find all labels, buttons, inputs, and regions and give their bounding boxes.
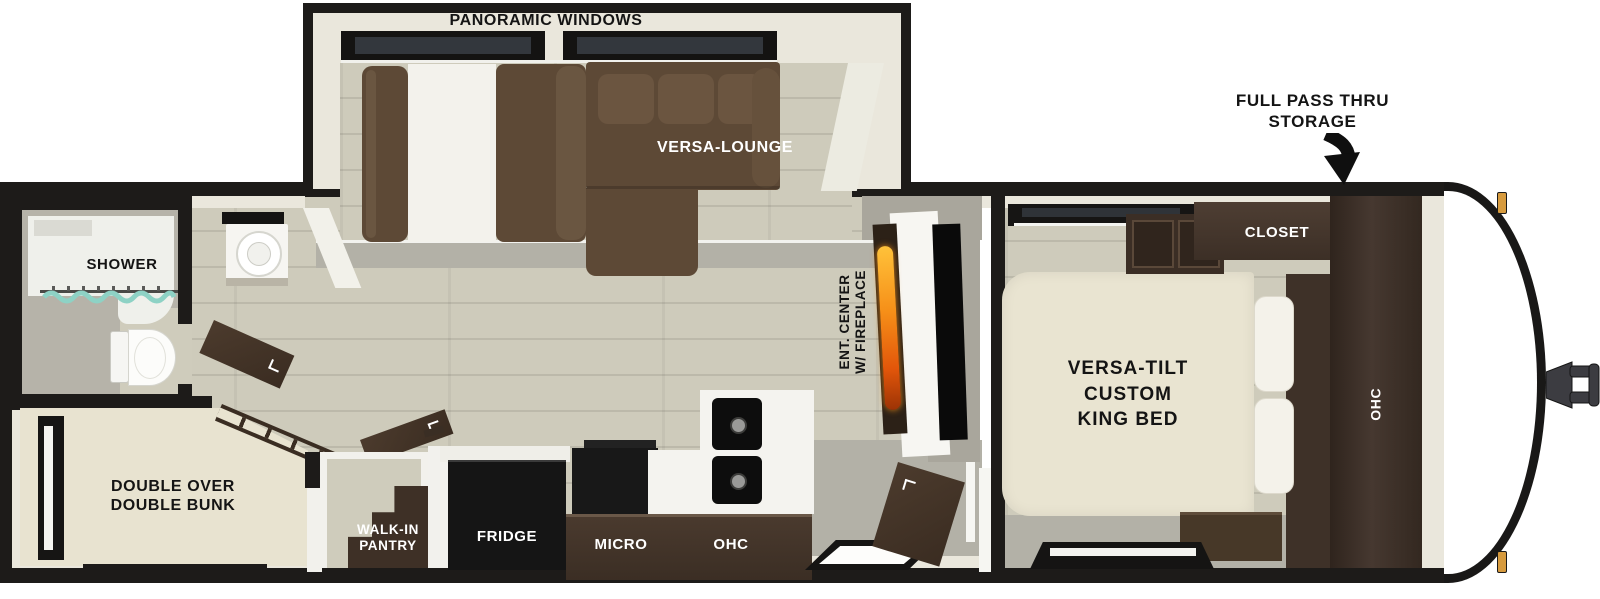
sofa-left-arm-highlight — [366, 70, 376, 238]
pantry-text-line1: WALK-IN — [348, 522, 428, 538]
sink-drain-bottom — [730, 473, 747, 490]
front-cap — [1444, 182, 1546, 583]
bed-text-line2: CUSTOM — [1002, 382, 1254, 408]
kitchen-ohc-label: OHC — [676, 536, 786, 554]
closet-label: CLOSET — [1212, 224, 1342, 242]
marker-light-bottom-icon — [1497, 551, 1507, 573]
sink-counter-notch — [648, 450, 702, 514]
kitchen-ohc-text: OHC — [676, 536, 786, 554]
top-wall-left — [0, 182, 305, 196]
pass-thru-text-line1: FULL PASS THRU — [1230, 90, 1395, 111]
bathroom-door-handle-icon — [268, 359, 282, 373]
bedroom-bottom-window-glass — [1050, 548, 1196, 556]
lounge-chaise — [586, 188, 698, 276]
sofa-right-arm-highlight — [556, 66, 586, 240]
shower-text: SHOWER — [47, 256, 197, 274]
entry-door-handle-icon — [902, 479, 916, 493]
versa-lounge-text: VERSA-LOUNGE — [625, 139, 825, 158]
fridge-text: FRIDGE — [448, 528, 566, 546]
bathroom-window-icon — [222, 212, 284, 224]
pantry-text-line2: PANTRY — [348, 538, 428, 554]
shower-label: SHOWER — [47, 256, 197, 274]
toilet-seat — [134, 337, 166, 379]
pantry-label: WALK-IN PANTRY — [348, 522, 428, 554]
bedroom-ohc-label: OHC — [1368, 374, 1385, 434]
sink-drain-top — [730, 417, 747, 434]
pass-thru-label: FULL PASS THRU STORAGE — [1230, 90, 1395, 133]
shower-shelf — [34, 220, 92, 236]
lounge-seat-seam — [586, 186, 780, 189]
bunk-bottom-mark — [83, 564, 267, 572]
vanity-shadow — [226, 278, 288, 286]
pillow-top — [1254, 296, 1294, 392]
ent-center-label: ENT. CENTER W/ FIREPLACE — [837, 237, 869, 407]
bathroom-door-opening — [178, 324, 192, 384]
floorplan-canvas: PANORAMIC WINDOWS VERSA-LOUNGE SHOWER — [0, 0, 1600, 599]
ent-center-text-line1: ENT. CENTER — [837, 237, 853, 407]
bed-text-line1: VERSA-TILT — [1002, 356, 1254, 382]
lounge-back-cushion-2 — [658, 74, 714, 124]
fridge-label: FRIDGE — [448, 528, 566, 546]
pillow-bottom — [1254, 398, 1294, 494]
hitch-coupler-icon — [1546, 358, 1600, 414]
ent-center-text-line2: W/ FIREPLACE — [853, 237, 869, 407]
vanity-sink-bowl — [247, 242, 271, 266]
slideout-window-left-glass — [355, 37, 531, 54]
slideout-window-right-glass — [577, 37, 763, 54]
lounge-right-arm — [752, 68, 780, 188]
micro-label: MICRO — [566, 536, 676, 554]
sofa-table-bed — [408, 64, 496, 242]
bed-text-line3: KING BED — [1002, 407, 1254, 433]
versa-lounge-label: VERSA-LOUNGE — [625, 139, 825, 158]
fridge-icon — [448, 460, 566, 570]
closet-text: CLOSET — [1212, 224, 1342, 242]
panoramic-windows-text: PANORAMIC WINDOWS — [426, 12, 666, 31]
king-bed-label: VERSA-TILT CUSTOM KING BED — [1002, 356, 1254, 433]
entry-jamb-2 — [979, 468, 991, 572]
shower-curtain-icon — [42, 288, 176, 306]
ohc-door-1 — [1132, 220, 1174, 268]
panoramic-windows-label: PANORAMIC WINDOWS — [426, 12, 666, 31]
pass-thru-text-line2: STORAGE — [1230, 111, 1395, 132]
bunk-text-line2: DOUBLE BUNK — [48, 497, 298, 516]
microwave-icon — [572, 448, 658, 514]
toilet-tank — [110, 331, 129, 383]
marker-light-top-icon — [1497, 192, 1507, 214]
entry-jamb-1 — [966, 462, 975, 542]
pass-thru-arrow-icon — [1314, 133, 1372, 187]
bedroom-ohc-text: OHC — [1368, 374, 1385, 434]
lounge-back-cushion-1 — [598, 74, 654, 124]
bunk-text-line1: DOUBLE OVER — [48, 478, 298, 497]
micro-text: MICRO — [566, 536, 676, 554]
bunk-label: DOUBLE OVER DOUBLE BUNK — [48, 478, 298, 516]
